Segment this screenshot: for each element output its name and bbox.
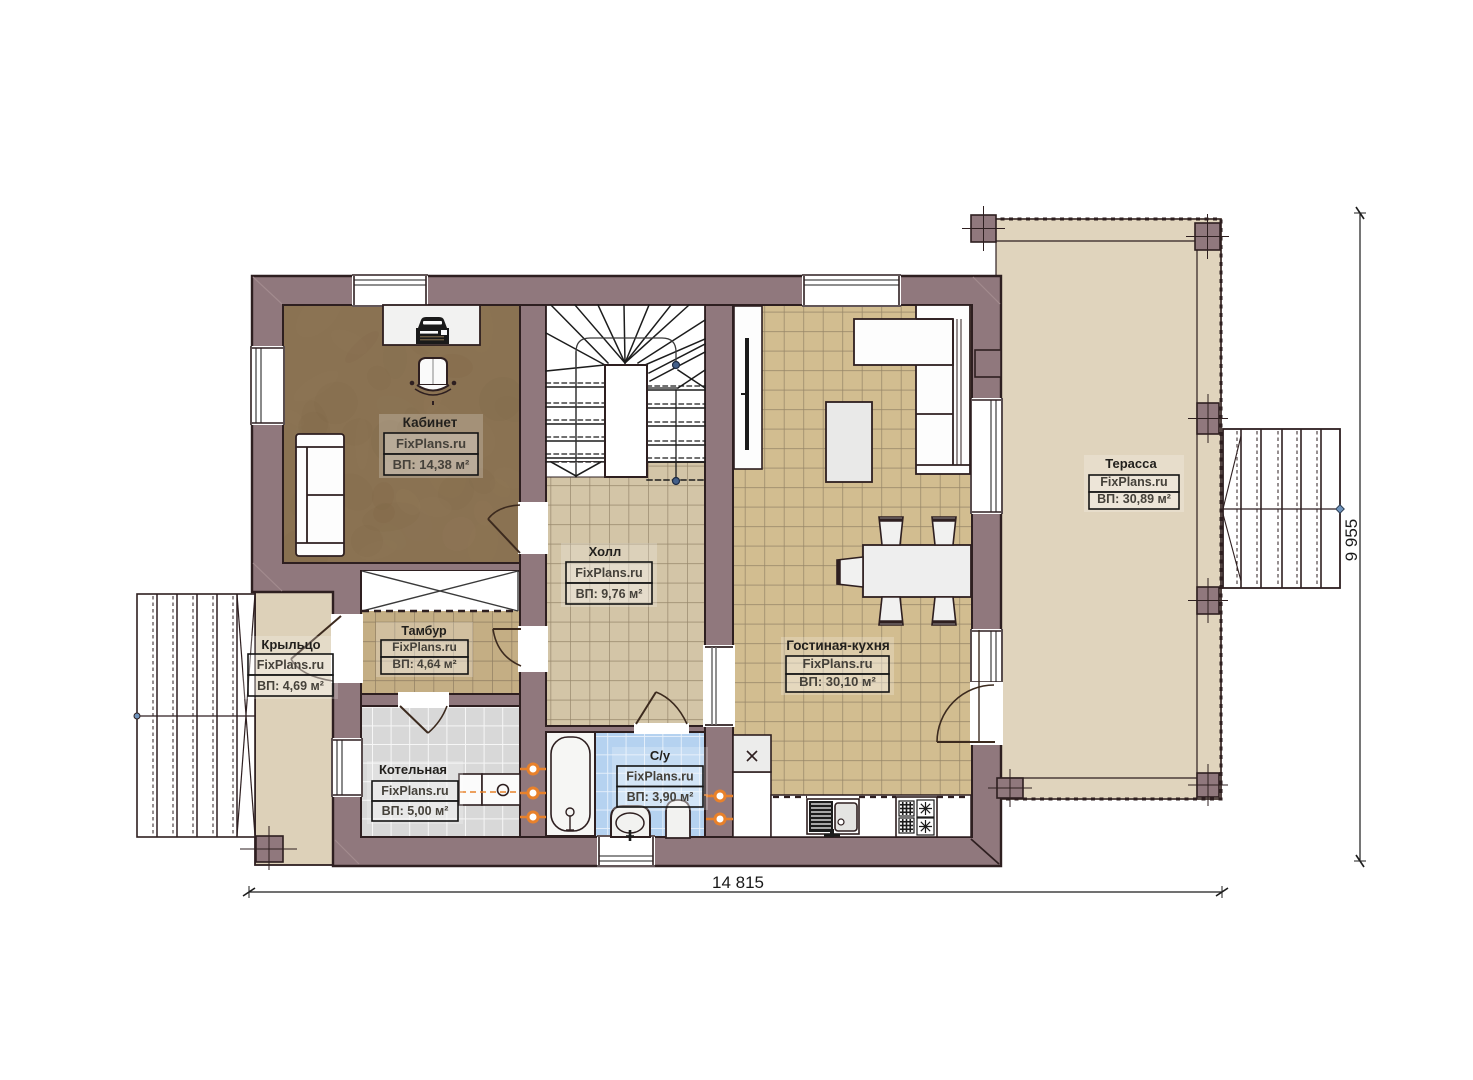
svg-text:ВП: 3,90 м²: ВП: 3,90 м² xyxy=(627,790,694,804)
svg-text:Терасса: Терасса xyxy=(1105,456,1157,471)
svg-text:Холл: Холл xyxy=(589,544,622,559)
svg-text:Крыльцо: Крыльцо xyxy=(261,637,320,652)
svg-text:ВП: 4,64 м²: ВП: 4,64 м² xyxy=(392,657,456,671)
svg-text:ВП: 30,89 м²: ВП: 30,89 м² xyxy=(1097,492,1171,506)
svg-text:FixPlans.ru: FixPlans.ru xyxy=(1100,475,1167,489)
svg-text:FixPlans.ru: FixPlans.ru xyxy=(396,436,466,451)
svg-text:FixPlans.ru: FixPlans.ru xyxy=(802,656,872,671)
svg-text:14 815: 14 815 xyxy=(712,873,764,892)
svg-text:С/у: С/у xyxy=(650,748,671,763)
svg-text:ВП: 5,00 м²: ВП: 5,00 м² xyxy=(382,804,449,818)
svg-text:FixPlans.ru: FixPlans.ru xyxy=(626,770,693,784)
svg-text:FixPlans.ru: FixPlans.ru xyxy=(575,566,642,580)
svg-text:Котельная: Котельная xyxy=(379,762,447,777)
svg-text:9 955: 9 955 xyxy=(1342,519,1361,562)
svg-text:Гостиная-кухня: Гостиная-кухня xyxy=(786,638,889,653)
svg-text:ВП: 30,10 м²: ВП: 30,10 м² xyxy=(799,674,876,689)
svg-text:FixPlans.ru: FixPlans.ru xyxy=(392,640,457,654)
svg-text:Кабинет: Кабинет xyxy=(403,415,458,430)
svg-text:Тамбур: Тамбур xyxy=(401,624,447,638)
svg-text:ВП: 4,69 м²: ВП: 4,69 м² xyxy=(257,679,324,693)
svg-text:FixPlans.ru: FixPlans.ru xyxy=(381,784,448,798)
svg-text:ВП: 9,76 м²: ВП: 9,76 м² xyxy=(576,587,643,601)
svg-text:ВП: 14,38 м²: ВП: 14,38 м² xyxy=(393,457,470,472)
svg-text:FixPlans.ru: FixPlans.ru xyxy=(257,658,324,672)
